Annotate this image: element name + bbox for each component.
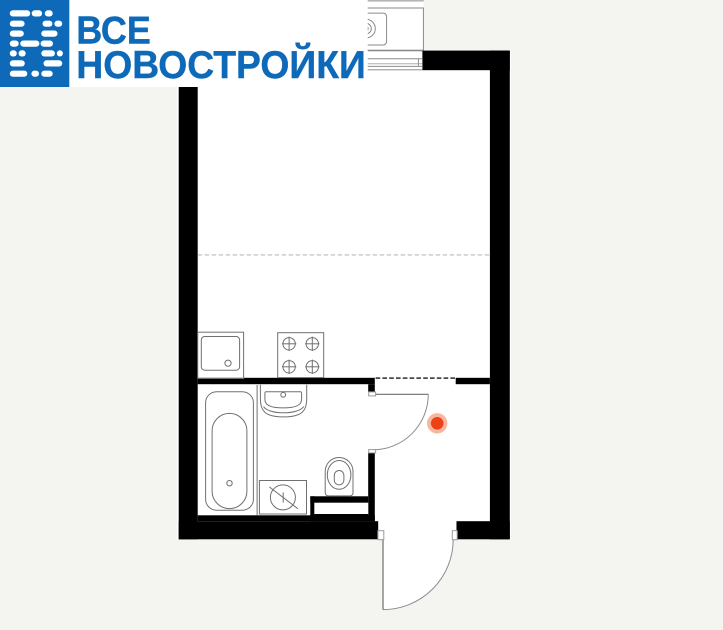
svg-text:НОВОСТРОЙКИ: НОВОСТРОЙКИ <box>76 42 366 87</box>
